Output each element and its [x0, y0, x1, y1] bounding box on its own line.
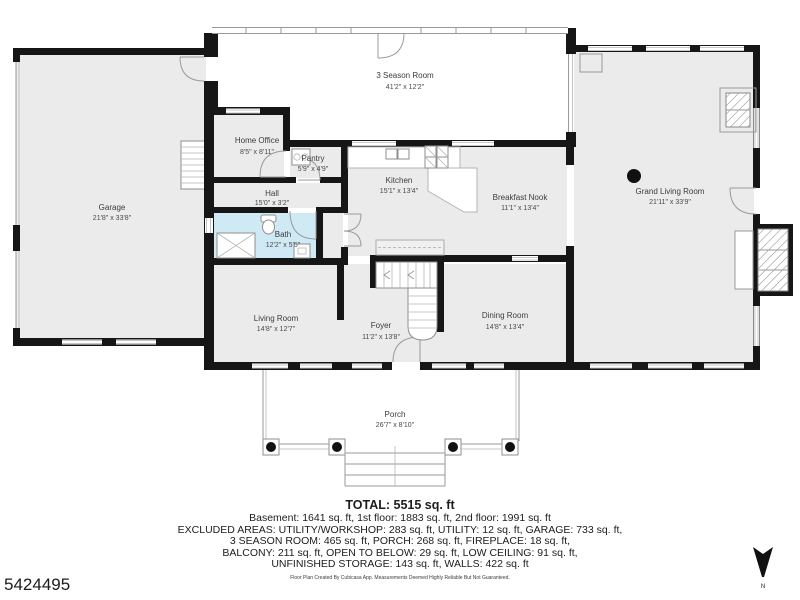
room-label-kitchen: Kitchen: [386, 176, 413, 185]
disclaimer: Floor Plan Created By Cubicasa App. Meas…: [0, 575, 800, 581]
room-fills: [16, 33, 754, 442]
floor-plan-page: 3 Season Room 41'2" x 12'2" Home Office …: [0, 0, 800, 600]
area-summary: TOTAL: 5515 sq. ft Basement: 1641 sq. ft…: [0, 498, 800, 581]
room-label-home-office: Home Office: [235, 136, 280, 145]
room-label-foyer: Foyer: [371, 321, 392, 330]
room-dims-grand-living: 21'11" x 33'9": [649, 199, 691, 206]
total-area: TOTAL: 5515 sq. ft: [0, 498, 800, 512]
corridor-area: [323, 213, 343, 259]
stove-icon: [425, 146, 448, 168]
summary-floors: Basement: 1641 sq. ft, 1st floor: 1883 s…: [0, 513, 800, 525]
room-label-porch: Porch: [385, 410, 406, 419]
porch-steps: [345, 446, 445, 486]
room-dims-porch: 26'7" x 8'10": [376, 422, 415, 429]
home-office-area: [214, 113, 284, 178]
room-dims-three-season: 41'2" x 12'2": [386, 84, 425, 91]
room-label-pantry: Pantry: [301, 154, 324, 163]
summary-excluded-4: UNFINISHED STORAGE: 143 sq. ft, WALLS: 4…: [0, 559, 800, 571]
compass-n-label: N: [748, 584, 778, 590]
fireplace: [735, 224, 793, 296]
north-arrow-icon: [750, 546, 776, 580]
column-dot: [627, 169, 641, 183]
room-dims-home-office: 8'5" x 8'11": [240, 149, 274, 156]
room-dims-hall: 15'0" x 3'2": [255, 200, 290, 207]
room-dims-garage: 21'8" x 33'8": [93, 215, 132, 222]
porch-area: [262, 370, 520, 442]
listing-id: 5424495: [4, 575, 70, 595]
room-dims-dining-room: 14'8" x 13'4": [486, 324, 525, 331]
room-dims-breakfast-nook: 11'1" x 13'4": [501, 205, 539, 212]
garage-stairs: [181, 141, 206, 189]
room-label-bath: Bath: [275, 230, 291, 239]
room-dims-pantry: 5'9" x 4'9": [298, 166, 329, 173]
room-dims-bath: 12'2" x 5'5": [266, 242, 301, 249]
room-dims-foyer: 11'2" x 13'8": [362, 334, 400, 341]
floor-plan-drawing: 3 Season Room 41'2" x 12'2" Home Office …: [0, 0, 800, 495]
room-label-three-season: 3 Season Room: [376, 71, 434, 80]
garage-area: [16, 52, 206, 340]
room-label-dining-room: Dining Room: [482, 311, 529, 320]
room-dims-living-room: 14'8" x 12'7": [257, 326, 296, 333]
room-dims-kitchen: 15'1" x 13'4": [380, 188, 419, 195]
room-label-hall: Hall: [265, 189, 279, 198]
room-label-living-room: Living Room: [254, 314, 299, 323]
kitchen-sink-icon: [386, 149, 397, 159]
room-label-garage: Garage: [99, 203, 126, 212]
hearth: [735, 231, 753, 289]
room-label-breakfast-nook: Breakfast Nook: [493, 193, 549, 202]
compass: N: [748, 546, 778, 592]
room-label-grand-living: Grand Living Room: [636, 187, 705, 196]
